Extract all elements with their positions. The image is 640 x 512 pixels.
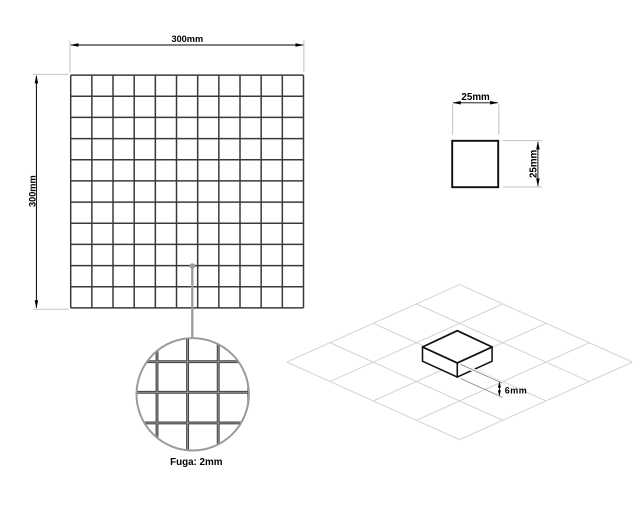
svg-text:300mm: 300mm xyxy=(27,175,37,207)
svg-text:Fuga: 2mm: Fuga: 2mm xyxy=(170,457,223,468)
svg-text:6mm: 6mm xyxy=(505,386,528,396)
svg-text:25mm: 25mm xyxy=(461,92,490,103)
svg-text:300mm: 300mm xyxy=(171,34,203,44)
svg-text:25mm: 25mm xyxy=(528,149,539,178)
